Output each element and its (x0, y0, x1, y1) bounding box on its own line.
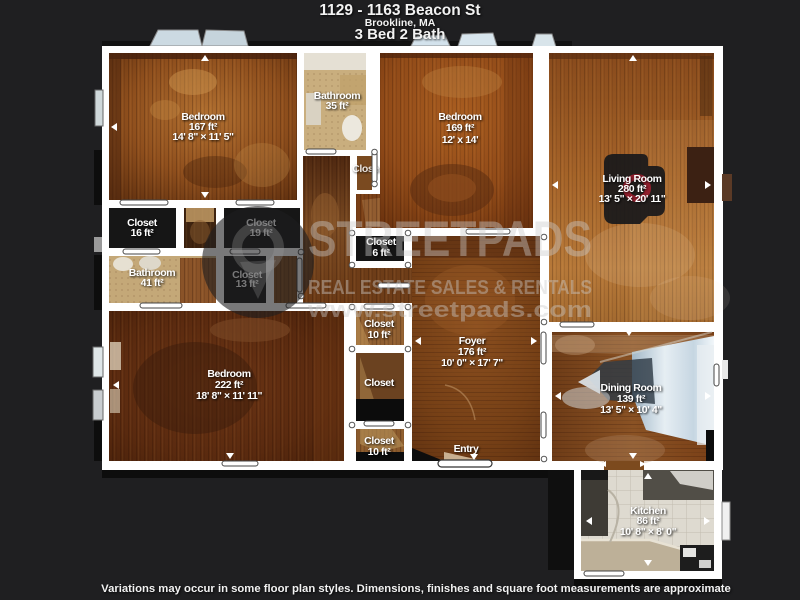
svg-text:10 ft²: 10 ft² (368, 329, 392, 341)
svg-text:13' 5" × 10' 4": 13' 5" × 10' 4" (600, 404, 662, 416)
svg-text:13' 5" × 20' 11": 13' 5" × 20' 11" (599, 193, 666, 205)
svg-text:Closet: Closet (364, 377, 395, 389)
svg-text:10 ft²: 10 ft² (368, 446, 392, 458)
svg-text:35 ft²: 35 ft² (326, 100, 350, 112)
svg-text:Variations may occur in some f: Variations may occur in some floor plan … (101, 583, 731, 595)
svg-text:14' 8" × 11' 5": 14' 8" × 11' 5" (172, 131, 234, 143)
svg-text:169 ft²: 169 ft² (446, 122, 475, 134)
svg-text:Entry: Entry (454, 443, 479, 455)
svg-text:www.streetpads.com: www.streetpads.com (307, 297, 592, 322)
svg-text:10' 0" × 17' 7": 10' 0" × 17' 7" (441, 357, 503, 369)
svg-text:10' 8" × 8' 0": 10' 8" × 8' 0" (620, 526, 677, 538)
svg-text:Closet: Closet (352, 163, 383, 175)
svg-text:STREETPADS: STREETPADS (308, 211, 592, 267)
svg-text:12' x 14': 12' x 14' (442, 134, 478, 146)
svg-text:3 Bed 2 Bath: 3 Bed 2 Bath (355, 26, 446, 43)
svg-text:41 ft²: 41 ft² (141, 277, 165, 289)
svg-text:REAL ESTATE SALES & RENTALS: REAL ESTATE SALES & RENTALS (308, 277, 592, 299)
svg-text:18' 8" × 11' 11": 18' 8" × 11' 11" (196, 390, 262, 402)
svg-text:16 ft²: 16 ft² (131, 227, 155, 239)
